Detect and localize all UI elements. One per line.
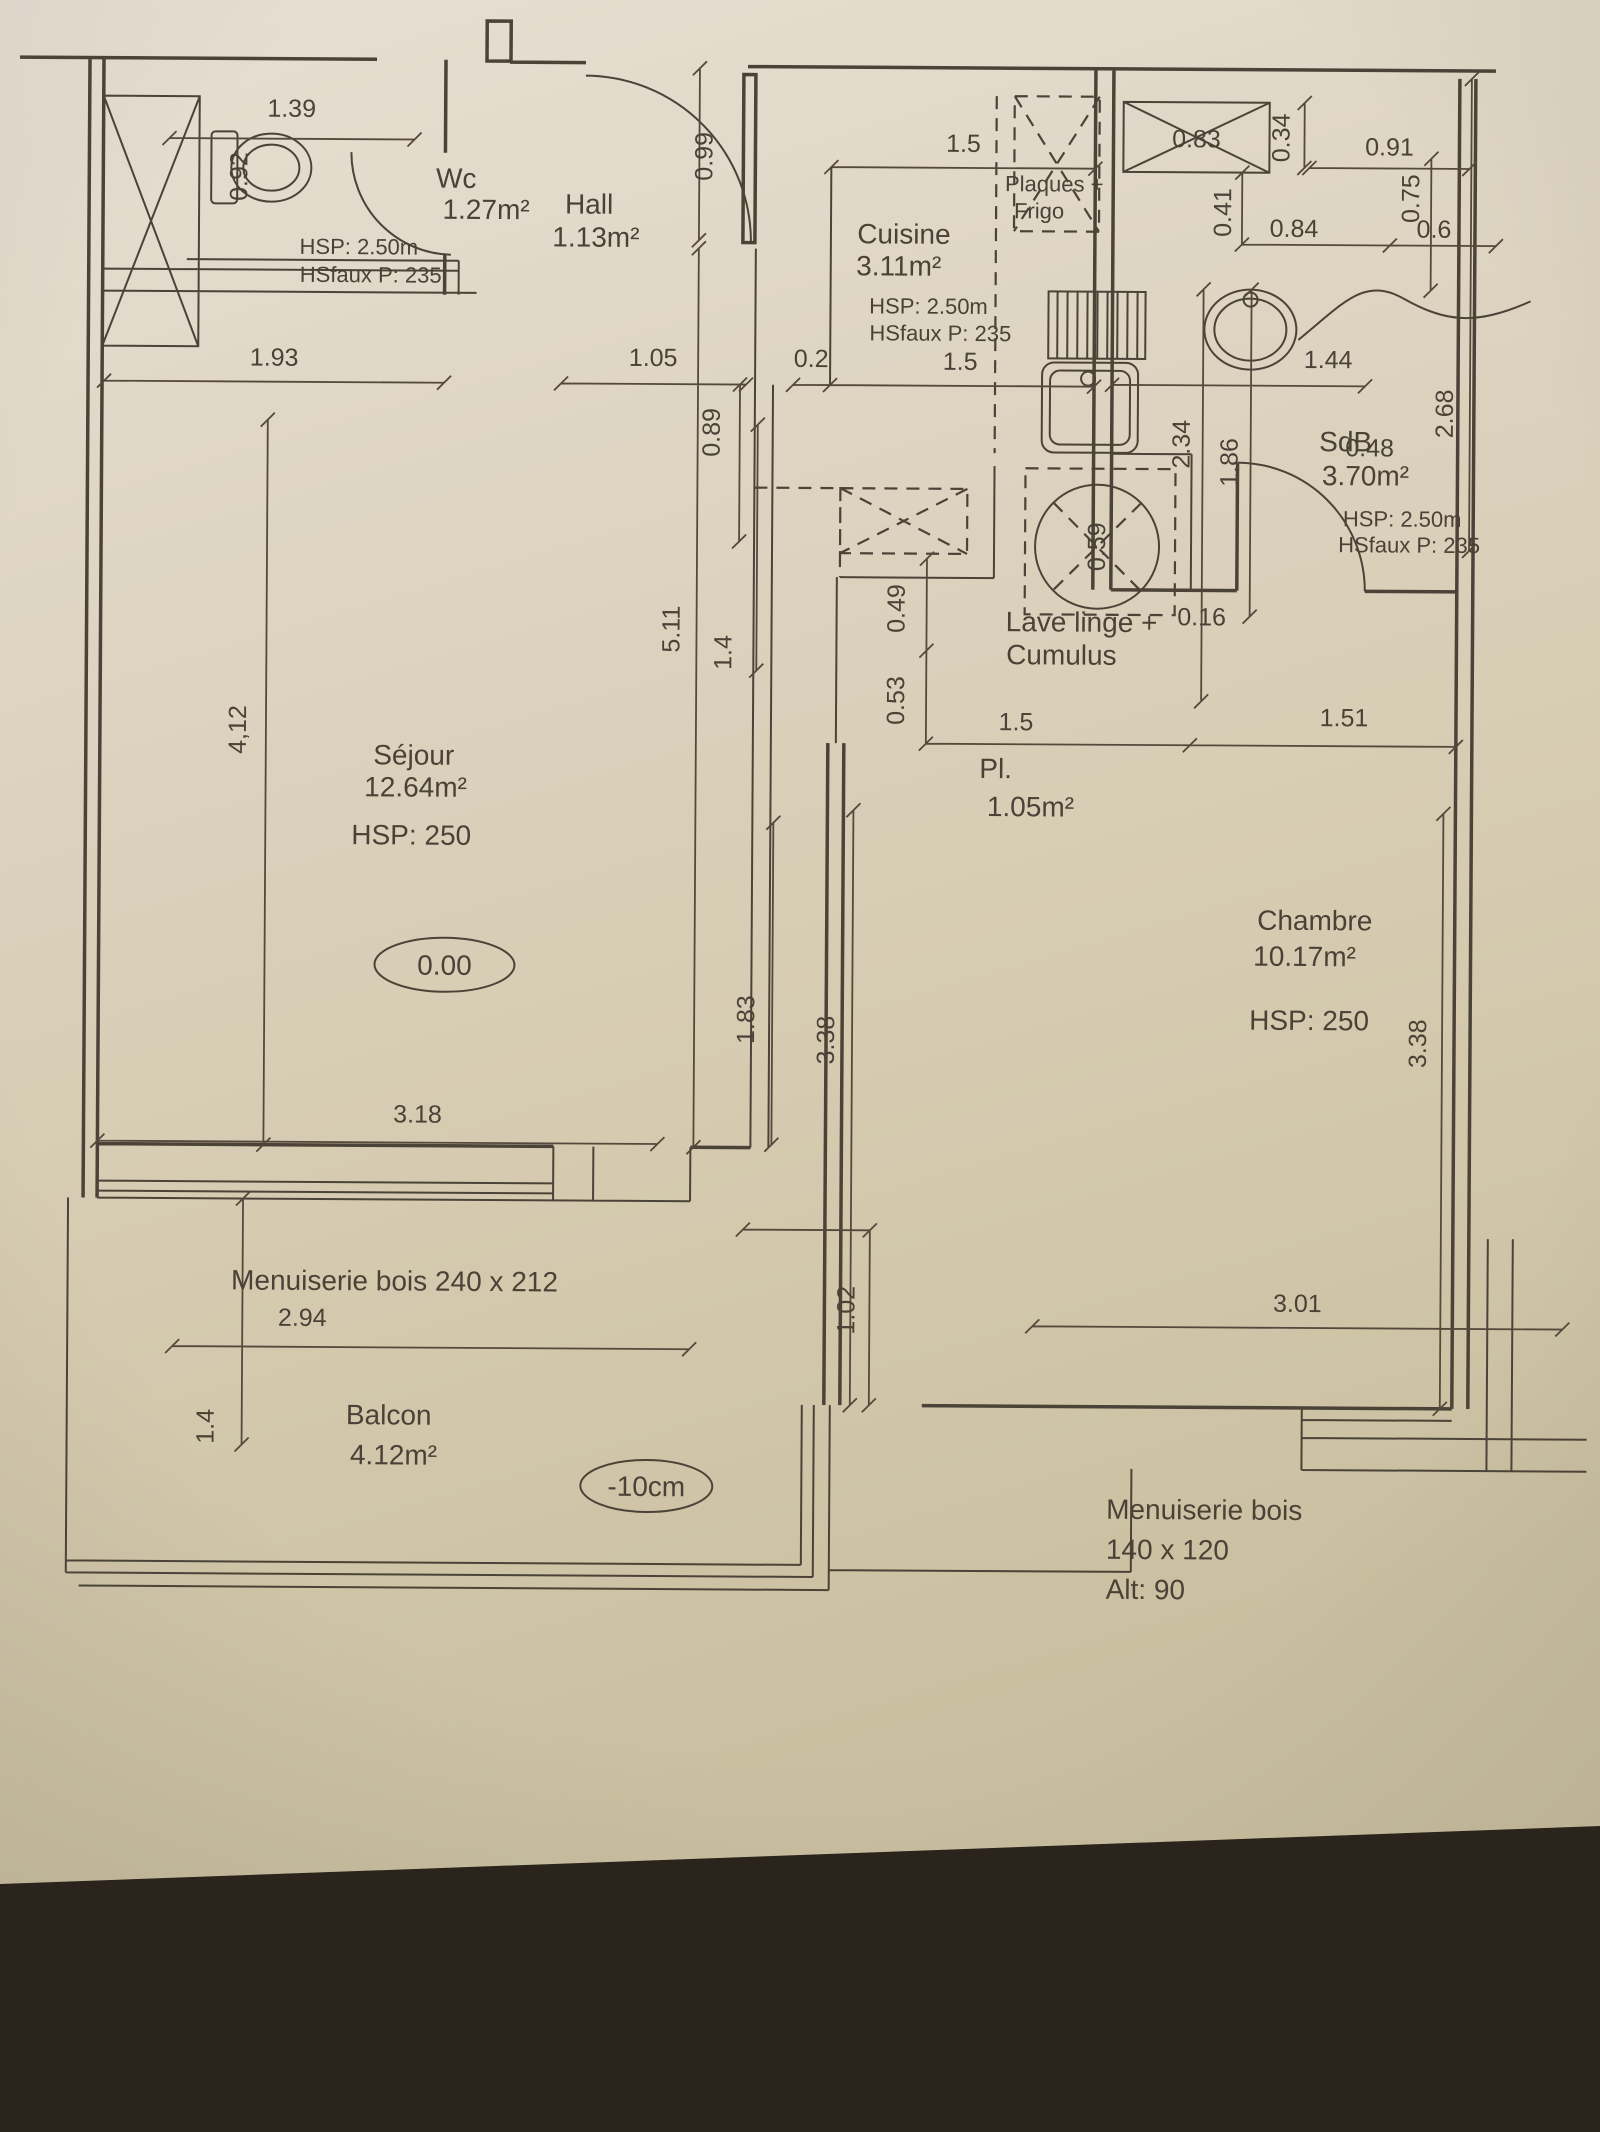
cuisine-hsp: HSP: 2.50m (869, 293, 988, 319)
dim-034: 0.34 (1267, 113, 1295, 162)
dim-016: 0.16 (1177, 603, 1226, 631)
dim-sdb-width: 1.44 (1304, 346, 1353, 374)
dim-toilet: 0.92 (225, 152, 253, 201)
dim-shaft-top: 0.83 (1172, 125, 1221, 153)
sejour-level: 0.00 (417, 950, 472, 981)
dim-sejour-width: 3.18 (393, 1100, 442, 1128)
room-area-chambre: 10.17m² (1253, 941, 1356, 973)
dim-091: 0.91 (1365, 133, 1414, 161)
dim-084: 0.84 (1270, 215, 1319, 243)
equip-cumulus: Cumulus (1006, 639, 1117, 671)
chambre-window-label-2: 140 x 120 (1106, 1534, 1229, 1566)
dim-chambre-width: 3.01 (1273, 1290, 1322, 1318)
dim-089: 0.89 (698, 408, 726, 457)
room-label-sejour: Séjour (373, 739, 454, 770)
room-label-hall: Hall (565, 188, 613, 219)
wc-hsfaux: HSfaux P: 235 (300, 262, 442, 288)
dim-186: 1.86 (1215, 438, 1243, 487)
cuisine-hsfaux: HSfaux P: 235 (869, 320, 1011, 346)
dim-cumulus: 0.59 (1083, 522, 1111, 571)
chambre-window-label-1: Menuiserie bois (1106, 1494, 1302, 1526)
chambre-window-label-3: Alt: 90 (1106, 1574, 1186, 1605)
dim-02: 0.2 (794, 345, 829, 373)
room-label-pl: Pl. (979, 753, 1012, 784)
dim-chambre-h-left: 3.38 (812, 1016, 840, 1065)
dim-sejour-height: 4,12 (224, 705, 252, 754)
room-area-balcon: 4.12m² (350, 1439, 437, 1471)
dim-053: 0.53 (882, 676, 910, 725)
sejour-hsp: HSP: 250 (351, 819, 471, 851)
room-area-sejour: 12.64m² (364, 771, 467, 803)
room-label-balcon: Balcon (346, 1399, 432, 1431)
sejour-window-label: Menuiserie bois 240 x 212 (231, 1264, 558, 1297)
floor-plan: Wc 1.27m² Hall 1.13m² HSP: 2.50m HSfaux … (0, 0, 1600, 2132)
sdb-hsfaux: HSfaux P: 235 (1338, 532, 1480, 558)
dim-pl-width: 1.5 (999, 708, 1034, 736)
room-label-cuisine: Cuisine (857, 218, 951, 250)
equip-lave-linge: Lave linge + (1006, 606, 1158, 638)
dim-wc-width: 1.39 (267, 95, 316, 123)
dim-kitchen-top: 1.5 (946, 130, 981, 158)
room-area-hall: 1.13m² (552, 221, 639, 253)
dim-chambre-top: 1.51 (1320, 704, 1369, 732)
dim-sejour-top: 1.93 (250, 344, 299, 372)
room-area-sdb: 3.70m² (1322, 460, 1409, 492)
balcon-level: -10cm (607, 1471, 685, 1502)
dim-balcon-window: 2.94 (278, 1304, 327, 1332)
paper-vignette (0, 0, 1600, 1884)
room-area-cuisine: 3.11m² (856, 250, 941, 282)
dim-075: 0.75 (1397, 174, 1425, 223)
dim-183: 1.83 (732, 995, 760, 1044)
room-label-chambre: Chambre (1257, 905, 1372, 937)
equip-plaques: Plaques + (1005, 171, 1104, 197)
dim-234: 2.34 (1168, 420, 1196, 469)
dim-kitchen-bottom: 1.5 (943, 348, 978, 376)
wc-hsp: HSP: 2.50m (299, 234, 418, 260)
equip-frigo: Frigo (1014, 198, 1064, 223)
dim-041: 0.41 (1209, 188, 1237, 237)
room-label-wc: Wc (436, 163, 477, 194)
sdb-hsp: HSP: 2.50m (1343, 506, 1462, 532)
dim-sdb-height: 2.68 (1431, 389, 1459, 438)
dim-14: 1.4 (709, 635, 737, 670)
chambre-hsp: HSP: 250 (1249, 1005, 1369, 1037)
dim-hall-entry: 0.99 (690, 132, 718, 181)
dim-102: 1.02 (832, 1286, 860, 1335)
dim-hall-width: 1.05 (629, 344, 678, 372)
dim-sdb-door: 0.48 (1345, 434, 1394, 462)
dim-balcon-depth: 1.4 (192, 1409, 220, 1444)
dim-049: 0.49 (883, 584, 911, 633)
dim-chambre-h-right: 3.38 (1404, 1019, 1432, 1068)
floor-plan-photo: Wc 1.27m² Hall 1.13m² HSP: 2.50m HSfaux … (0, 0, 1600, 2132)
dim-depth-total: 5.11 (657, 606, 685, 653)
room-area-wc: 1.27m² (442, 194, 529, 226)
room-area-pl: 1.05m² (987, 791, 1074, 823)
